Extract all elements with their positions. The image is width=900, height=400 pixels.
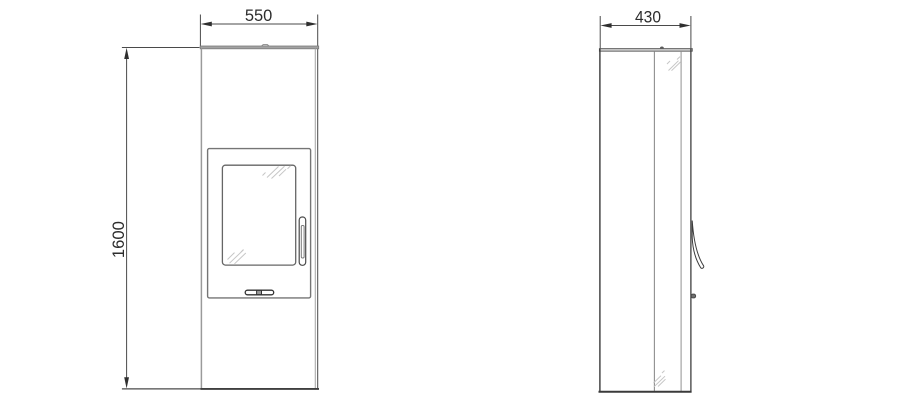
svg-text:1600: 1600 xyxy=(109,221,128,258)
svg-text:430: 430 xyxy=(635,8,661,27)
svg-text:550: 550 xyxy=(245,6,273,25)
